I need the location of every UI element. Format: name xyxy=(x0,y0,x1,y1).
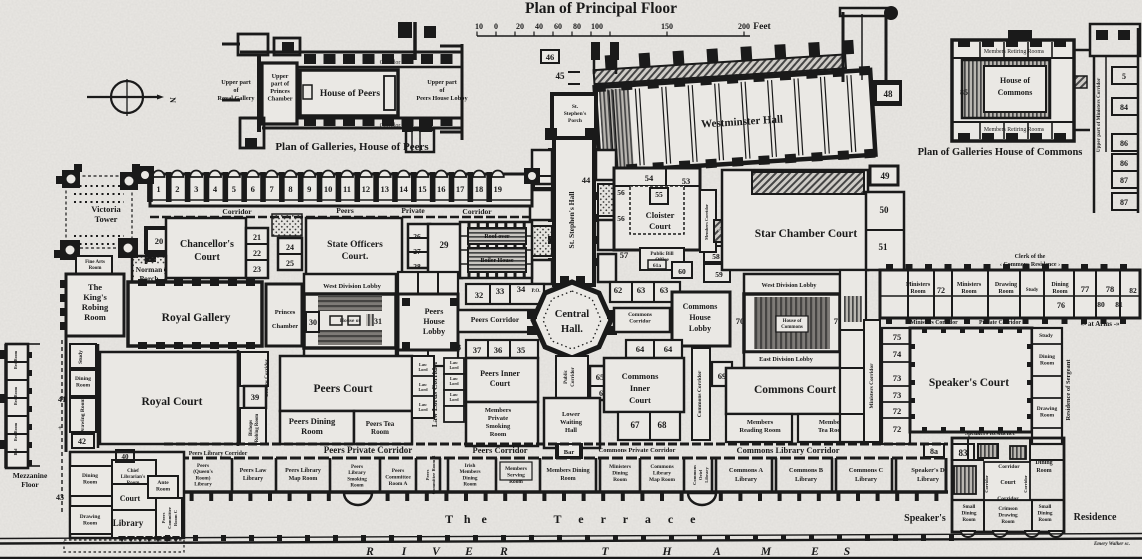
svg-text:Bishops: Bishops xyxy=(249,420,254,436)
svg-text:Chancellor's: Chancellor's xyxy=(180,239,234,250)
svg-text:Residence of Sergeant: Residence of Sergeant xyxy=(1065,359,1072,421)
svg-text:Court: Court xyxy=(120,494,141,503)
svg-text:Speaker's D: Speaker's D xyxy=(911,467,945,474)
svg-text:Victoria: Victoria xyxy=(91,204,121,214)
svg-text:22: 22 xyxy=(253,249,261,258)
svg-text:Lord: Lord xyxy=(449,381,459,386)
svg-text:Corridor: Corridor xyxy=(997,496,1019,502)
svg-text:Inner: Inner xyxy=(630,383,651,393)
svg-text:Plan of Galleries, House of Pe: Plan of Galleries, House of Peers xyxy=(275,141,429,153)
svg-text:«- at Arms -»: «- at Arms -» xyxy=(1080,320,1120,328)
svg-text:Members: Members xyxy=(505,466,527,472)
svg-text:Feet: Feet xyxy=(753,22,771,32)
svg-text:Commons Library Corridor: Commons Library Corridor xyxy=(737,445,840,455)
svg-text:Commons: Commons xyxy=(683,302,718,311)
svg-text:35: 35 xyxy=(517,345,526,355)
svg-text:73: 73 xyxy=(893,390,902,400)
svg-text:Dining: Dining xyxy=(1039,354,1055,360)
svg-text:40: 40 xyxy=(535,22,543,31)
svg-text:59: 59 xyxy=(715,270,723,279)
svg-text:Map Room: Map Room xyxy=(289,476,318,482)
svg-text:Library: Library xyxy=(113,518,144,528)
svg-text:Peers Law: Peers Law xyxy=(240,468,267,474)
svg-text:44: 44 xyxy=(582,175,591,185)
svg-text:Private: Private xyxy=(401,206,425,215)
svg-text:33: 33 xyxy=(496,286,505,296)
svg-text:Ministers: Ministers xyxy=(906,282,931,288)
svg-text:Stephen's: Stephen's xyxy=(564,111,587,117)
svg-text:50: 50 xyxy=(880,205,890,215)
svg-text:11: 11 xyxy=(343,184,351,194)
svg-text:Room: Room xyxy=(560,476,575,482)
svg-text:28: 28 xyxy=(413,262,421,271)
svg-text:100: 100 xyxy=(591,22,603,31)
svg-text:Room: Room xyxy=(1040,413,1054,419)
svg-text:King's: King's xyxy=(83,292,107,302)
svg-text:Small: Small xyxy=(963,504,976,510)
svg-text:Peers Inner: Peers Inner xyxy=(480,369,520,378)
svg-text:Room: Room xyxy=(83,480,97,486)
svg-text:Room: Room xyxy=(910,289,925,295)
svg-text:26: 26 xyxy=(413,232,421,241)
svg-text:Commons: Commons xyxy=(650,464,673,470)
svg-text:Private: Private xyxy=(488,415,508,422)
svg-text:4: 4 xyxy=(213,184,218,194)
svg-text:86: 86 xyxy=(1120,159,1128,168)
svg-text:Corridor: Corridor xyxy=(998,464,1020,470)
svg-text:48: 48 xyxy=(884,89,894,99)
svg-text:Drawing: Drawing xyxy=(80,514,101,520)
svg-text:Room: Room xyxy=(76,383,90,389)
svg-text:Peers: Peers xyxy=(336,206,354,215)
svg-text:E: E xyxy=(464,546,473,558)
svg-text:Drawing Room: Drawing Room xyxy=(80,398,86,434)
svg-text:80: 80 xyxy=(1097,300,1105,309)
svg-text:Peers: Peers xyxy=(197,463,209,469)
svg-text:Peers Dining: Peers Dining xyxy=(289,416,336,426)
svg-text:57: 57 xyxy=(620,250,629,260)
svg-text:Committee: Committee xyxy=(385,474,411,480)
svg-text:23: 23 xyxy=(253,265,261,274)
svg-text:S: S xyxy=(844,546,850,558)
svg-text:9: 9 xyxy=(307,184,311,194)
svg-text:Corridor: Corridor xyxy=(380,60,401,66)
svg-text:Bed Room: Bed Room xyxy=(13,350,18,369)
svg-text:House of: House of xyxy=(1000,76,1030,85)
svg-text:Floor: Floor xyxy=(21,480,39,489)
svg-text:150: 150 xyxy=(661,22,673,31)
svg-text:60: 60 xyxy=(554,22,562,31)
svg-text:Peers Library Corridor: Peers Library Corridor xyxy=(189,451,248,457)
svg-text:R: R xyxy=(365,546,374,558)
svg-text:T h e: T h e xyxy=(445,512,491,526)
svg-text:Bed Room: Bed Room xyxy=(13,422,18,441)
svg-text:Members: Members xyxy=(459,469,480,475)
svg-text:E: E xyxy=(810,546,819,558)
svg-text:Ministers Corridor: Ministers Corridor xyxy=(869,363,875,409)
svg-text:(Queen's: (Queen's xyxy=(193,468,213,475)
svg-text:The: The xyxy=(88,282,102,292)
svg-text:Plan of Principal Floor: Plan of Principal Floor xyxy=(525,0,677,17)
svg-text:Tower: Tower xyxy=(95,214,118,224)
svg-text:Speakers Residence: Speakers Residence xyxy=(965,431,1016,437)
svg-text:Room: Room xyxy=(83,521,97,527)
svg-text:Dining: Dining xyxy=(82,473,98,479)
svg-text:Corridor: Corridor xyxy=(984,475,989,493)
svg-text:Corridor: Corridor xyxy=(380,123,401,129)
svg-text:Members Corridor: Members Corridor xyxy=(704,204,709,240)
svg-text:Crimson: Crimson xyxy=(998,506,1017,512)
svg-text:T e r r a c e: T e r r a c e xyxy=(554,512,703,526)
svg-text:Central: Central xyxy=(555,309,589,320)
svg-text:30: 30 xyxy=(309,318,317,327)
svg-text:Court: Court xyxy=(629,395,651,405)
svg-text:10: 10 xyxy=(324,184,333,194)
svg-text:N: N xyxy=(168,97,177,103)
svg-text:56: 56 xyxy=(617,188,625,197)
svg-text:Commons Court: Commons Court xyxy=(754,384,836,396)
svg-text:Lord: Lord xyxy=(418,407,428,412)
svg-text:Room A: Room A xyxy=(389,481,408,487)
svg-text:Library: Library xyxy=(243,476,263,482)
svg-text:Corridor: Corridor xyxy=(222,207,252,216)
svg-text:81: 81 xyxy=(1115,300,1123,309)
svg-text:House of: House of xyxy=(783,319,802,324)
svg-text:Royal Gallery: Royal Gallery xyxy=(162,312,231,324)
svg-text:Dining: Dining xyxy=(1035,460,1052,466)
svg-text:Room: Room xyxy=(463,482,477,488)
svg-text:West Division Lobby: West Division Lobby xyxy=(323,283,382,290)
svg-text:Study: Study xyxy=(78,350,84,364)
svg-text:Residence: Residence xyxy=(1074,512,1117,523)
svg-text:64: 64 xyxy=(664,344,673,354)
svg-text:Smoking: Smoking xyxy=(347,476,367,482)
svg-text:Commons Private Corridor: Commons Private Corridor xyxy=(599,447,676,454)
svg-text:Library: Library xyxy=(348,470,366,476)
svg-text:Drawing: Drawing xyxy=(995,282,1017,288)
svg-text:7: 7 xyxy=(269,184,274,194)
svg-text:Peers Corridor: Peers Corridor xyxy=(471,315,520,324)
svg-text:63: 63 xyxy=(637,285,646,295)
svg-text:T: T xyxy=(601,546,609,558)
svg-text:29: 29 xyxy=(440,240,450,250)
svg-text:Peers Private Corridor: Peers Private Corridor xyxy=(324,445,412,455)
svg-text:Peers Corridor: Peers Corridor xyxy=(473,445,528,455)
svg-text:31: 31 xyxy=(374,317,382,326)
svg-text:68: 68 xyxy=(658,420,668,430)
svg-text:46: 46 xyxy=(546,52,555,62)
svg-text:Corridor: Corridor xyxy=(1023,475,1028,493)
svg-text:58: 58 xyxy=(712,252,720,261)
svg-text:Court: Court xyxy=(194,252,220,263)
svg-text:49: 49 xyxy=(881,171,891,181)
svg-text:72: 72 xyxy=(893,406,902,416)
svg-text:Commons: Commons xyxy=(998,88,1033,97)
svg-text:Corridor: Corridor xyxy=(629,319,651,325)
svg-text:Peers: Peers xyxy=(425,307,444,316)
svg-text:Irish: Irish xyxy=(465,463,476,469)
svg-text:Small: Small xyxy=(1039,504,1052,510)
svg-text:Lobby: Lobby xyxy=(423,327,445,336)
svg-text:Smoking: Smoking xyxy=(486,423,511,430)
svg-text:House: House xyxy=(689,313,711,322)
svg-text:Commons: Commons xyxy=(622,371,660,381)
svg-text:Clerk of the: Clerk of the xyxy=(1015,254,1046,260)
svg-text:Porch: Porch xyxy=(568,118,582,124)
svg-text:25: 25 xyxy=(286,259,294,268)
svg-text:Dining: Dining xyxy=(1051,282,1068,288)
svg-text:Peers: Peers xyxy=(425,469,430,480)
svg-text:61a: 61a xyxy=(653,263,662,269)
svg-text:Upper: Upper xyxy=(272,73,289,80)
svg-text:Hall: Hall xyxy=(565,427,577,434)
svg-text:Bed Room: Bed Room xyxy=(13,386,18,405)
svg-text:Room: Room xyxy=(962,517,976,523)
svg-text:Room: Room xyxy=(350,483,364,489)
svg-text:St. Stephen's Hall: St. Stephen's Hall xyxy=(567,192,576,249)
svg-text:Commons: Commons xyxy=(692,465,697,485)
svg-text:Chamber: Chamber xyxy=(272,323,298,330)
svg-text:Room): Room) xyxy=(196,474,211,481)
svg-text:53: 53 xyxy=(682,176,691,186)
svg-text:Commons: Commons xyxy=(781,325,803,330)
svg-text:3: 3 xyxy=(194,184,198,194)
svg-text:70: 70 xyxy=(736,316,745,326)
svg-text:Study: Study xyxy=(1026,288,1039,293)
svg-text:12: 12 xyxy=(362,184,371,194)
svg-text:Drawing: Drawing xyxy=(1037,406,1058,412)
svg-text:5: 5 xyxy=(1122,72,1126,81)
svg-text:Plan of Galleries House of Co: Plan of Galleries House of Commons xyxy=(918,147,1083,158)
svg-text:78: 78 xyxy=(1106,284,1115,294)
svg-text:Reading Room: Reading Room xyxy=(739,427,781,434)
svg-text:Dining: Dining xyxy=(1038,511,1053,517)
svg-text:24: 24 xyxy=(286,243,294,252)
svg-text:Commons C: Commons C xyxy=(849,467,884,474)
svg-text:Room: Room xyxy=(1052,289,1067,295)
svg-text:84: 84 xyxy=(1120,103,1128,112)
svg-text:Upper part of Ministers Corrid: Upper part of Ministers Corridor xyxy=(1096,77,1102,152)
svg-text:St.: St. xyxy=(572,104,579,110)
svg-text:2: 2 xyxy=(175,184,179,194)
svg-text:Peers: Peers xyxy=(392,468,405,474)
svg-text:Library: Library xyxy=(855,476,878,483)
svg-text:51: 51 xyxy=(879,242,889,252)
svg-text:West Division Lobby: West Division Lobby xyxy=(761,282,817,289)
svg-text:5: 5 xyxy=(232,184,236,194)
svg-text:Peers: Peers xyxy=(351,464,363,470)
svg-text:House of Peers: House of Peers xyxy=(320,89,380,99)
svg-text:Library: Library xyxy=(653,471,672,477)
svg-text:P.O.: P.O. xyxy=(532,289,542,294)
svg-text:Library: Library xyxy=(795,476,818,483)
svg-text:Boiler House: Boiler House xyxy=(480,258,513,264)
svg-text:Cloister: Cloister xyxy=(646,210,675,220)
svg-text:34: 34 xyxy=(517,284,526,294)
svg-text:Princes: Princes xyxy=(270,88,290,95)
svg-text:+: + xyxy=(58,424,62,432)
svg-text:Librarian's: Librarian's xyxy=(121,475,146,480)
svg-text:Upper part: Upper part xyxy=(427,79,458,86)
svg-text:Room: Room xyxy=(613,477,627,483)
svg-text:87: 87 xyxy=(1120,176,1128,185)
svg-text:Ante: Ante xyxy=(157,480,169,486)
svg-text:62: 62 xyxy=(614,285,623,295)
svg-text:A: A xyxy=(712,546,721,558)
svg-text:Room: Room xyxy=(156,487,170,493)
svg-text:Roof over: Roof over xyxy=(484,234,509,240)
svg-text:83: 83 xyxy=(959,448,969,458)
svg-text:House: House xyxy=(423,317,445,326)
svg-text:Room C: Room C xyxy=(173,510,178,526)
svg-text:Commons Corridor: Commons Corridor xyxy=(697,370,703,417)
svg-text:I: I xyxy=(401,546,407,558)
svg-text:Lord: Lord xyxy=(418,367,428,372)
svg-text:Bar: Bar xyxy=(564,449,575,456)
svg-text:Members Retiring Rooms: Members Retiring Rooms xyxy=(984,127,1045,133)
svg-text:37: 37 xyxy=(473,345,482,355)
svg-text:Lobby: Lobby xyxy=(689,324,711,333)
svg-text:R: R xyxy=(499,546,508,558)
svg-text:39: 39 xyxy=(251,392,260,402)
svg-text:Court: Court xyxy=(1000,480,1015,486)
svg-text:Ministers Corridor: Ministers Corridor xyxy=(910,320,958,326)
svg-text:Dining: Dining xyxy=(612,471,628,477)
svg-text:Royal Court: Royal Court xyxy=(141,396,202,408)
svg-text:Room: Room xyxy=(1001,519,1015,525)
svg-text:43: 43 xyxy=(56,493,64,502)
svg-text:Members: Members xyxy=(747,419,774,426)
svg-text:Library: Library xyxy=(735,476,758,483)
svg-text:Speaker's Court: Speaker's Court xyxy=(929,377,1009,389)
svg-text:Drawing: Drawing xyxy=(998,513,1018,519)
svg-text:38: 38 xyxy=(453,343,461,352)
svg-text:Room: Room xyxy=(371,428,389,436)
svg-text:17: 17 xyxy=(456,184,465,194)
svg-text:Dining: Dining xyxy=(962,511,977,517)
svg-text:8a: 8a xyxy=(930,447,938,456)
svg-text:67: 67 xyxy=(631,420,641,430)
svg-text:V: V xyxy=(432,546,441,558)
svg-text:200: 200 xyxy=(738,22,750,31)
svg-text:Princes: Princes xyxy=(275,309,296,316)
svg-text:Members Dining: Members Dining xyxy=(546,468,589,474)
svg-text:Commons B: Commons B xyxy=(789,467,824,474)
svg-text:Committee: Committee xyxy=(167,507,172,529)
svg-text:6: 6 xyxy=(251,184,255,194)
svg-text:72: 72 xyxy=(937,286,945,295)
svg-text:Lord: Lord xyxy=(449,365,459,370)
svg-text:76: 76 xyxy=(1057,301,1065,310)
svg-text:Speaker's: Speaker's xyxy=(904,513,946,524)
svg-text:Room: Room xyxy=(84,312,106,322)
svg-text:1: 1 xyxy=(156,184,160,194)
svg-text:Room: Room xyxy=(1036,468,1051,474)
svg-text:86: 86 xyxy=(1120,139,1128,148)
svg-text:Peers Court: Peers Court xyxy=(313,383,372,395)
svg-text:Peers Library: Peers Library xyxy=(285,468,321,474)
svg-text:Robing: Robing xyxy=(82,302,109,312)
svg-text:Norman: Norman xyxy=(136,265,163,274)
svg-text:Robing Room: Robing Room xyxy=(255,414,260,442)
svg-text:Study: Study xyxy=(1039,333,1053,339)
svg-text:40: 40 xyxy=(122,453,130,461)
svg-text:Lord: Lord xyxy=(449,397,459,402)
svg-text:80: 80 xyxy=(573,22,581,31)
svg-text:Room: Room xyxy=(1040,361,1054,367)
svg-text:H: H xyxy=(662,546,673,558)
svg-text:54: 54 xyxy=(645,173,654,183)
svg-text:18: 18 xyxy=(475,184,484,194)
svg-text:Dining: Dining xyxy=(75,376,91,382)
svg-text:Ministers: Ministers xyxy=(609,464,631,470)
svg-text:Bed: Bed xyxy=(13,448,18,455)
svg-text:Committee Room B: Committee Room B xyxy=(431,456,436,495)
svg-text:Fine Arts: Fine Arts xyxy=(85,260,105,265)
svg-text:Peers Tea: Peers Tea xyxy=(366,420,395,428)
svg-text:M: M xyxy=(760,546,772,558)
svg-text:Members: Members xyxy=(485,407,512,414)
svg-text:Members Retiring Rooms: Members Retiring Rooms xyxy=(984,49,1045,55)
svg-text:27: 27 xyxy=(413,247,421,256)
svg-text:75: 75 xyxy=(893,332,902,342)
svg-text:Oriel: Oriel xyxy=(698,469,703,480)
svg-text:Lord: Lord xyxy=(418,387,428,392)
svg-text:Court: Court xyxy=(490,379,511,388)
svg-text:Private Corridor: Private Corridor xyxy=(979,320,1021,326)
svg-text:21: 21 xyxy=(253,233,261,242)
svg-text:Map Room: Map Room xyxy=(649,477,675,483)
svg-text:36: 36 xyxy=(494,345,503,355)
svg-text:19: 19 xyxy=(494,184,503,194)
svg-text:Lower: Lower xyxy=(562,411,580,418)
svg-text:74: 74 xyxy=(893,349,902,359)
svg-text:8: 8 xyxy=(288,184,292,194)
svg-text:State Officers: State Officers xyxy=(327,240,383,250)
svg-text:Chief: Chief xyxy=(127,469,139,474)
svg-text:15: 15 xyxy=(418,184,427,194)
svg-text:Room: Room xyxy=(301,426,323,436)
svg-text:63: 63 xyxy=(660,285,669,295)
svg-text:Mezzanine: Mezzanine xyxy=(13,471,48,480)
svg-text:Room: Room xyxy=(1038,517,1052,523)
svg-text:56: 56 xyxy=(617,214,625,223)
svg-text:Upper part: Upper part xyxy=(221,79,252,86)
svg-text:Commons: Commons xyxy=(628,312,652,318)
svg-text:Library: Library xyxy=(194,482,212,488)
svg-text:77: 77 xyxy=(1081,284,1090,294)
svg-text:16: 16 xyxy=(437,184,446,194)
svg-text:Court: Court xyxy=(649,221,671,231)
svg-text:20: 20 xyxy=(155,236,164,246)
svg-text:Hall.: Hall. xyxy=(561,324,583,335)
svg-text:0: 0 xyxy=(494,22,498,31)
svg-text:Ministers: Ministers xyxy=(957,282,982,288)
svg-text:Library: Library xyxy=(917,476,940,483)
svg-text:Court.: Court. xyxy=(342,252,369,262)
svg-text:Chamber: Chamber xyxy=(267,96,292,103)
svg-text:73: 73 xyxy=(893,373,902,383)
svg-text:85: 85 xyxy=(960,88,968,97)
svg-text:20: 20 xyxy=(516,22,524,31)
svg-text:45: 45 xyxy=(556,71,566,81)
svg-text:13: 13 xyxy=(380,184,389,194)
svg-text:Room: Room xyxy=(490,431,507,438)
svg-text:Room: Room xyxy=(998,289,1013,295)
svg-text:82: 82 xyxy=(1129,286,1137,295)
svg-text:Corridor: Corridor xyxy=(462,207,492,216)
svg-text:Dining: Dining xyxy=(463,475,478,481)
